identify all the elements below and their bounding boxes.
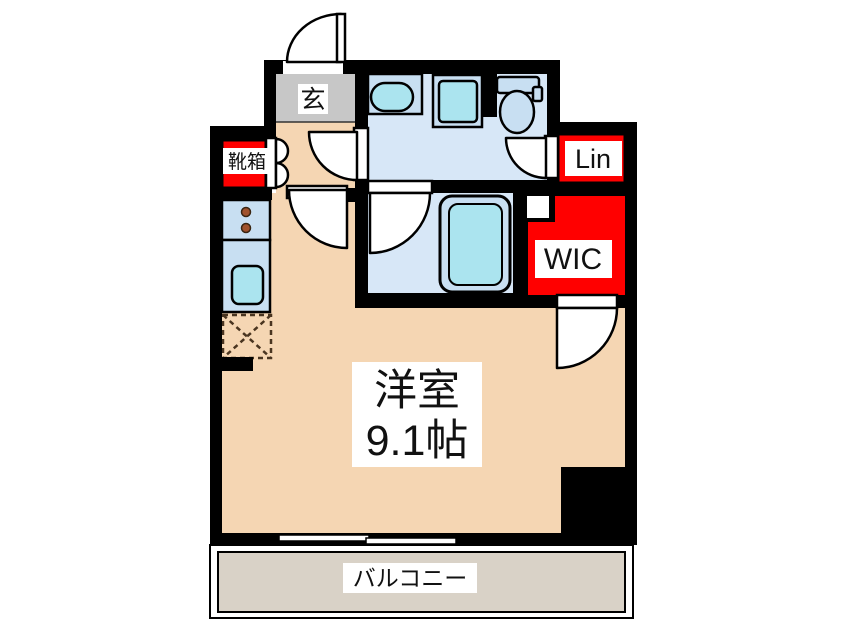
stove-burners-icon: [242, 224, 251, 233]
main-room-name: 洋室: [374, 367, 460, 415]
wall-pillar: [561, 467, 637, 545]
wall-shoebox-bottom: [210, 188, 272, 200]
kitchen-sink-icon: [232, 266, 263, 304]
wall-toilet-partition: [483, 60, 497, 117]
shoe-cabinet-label: 靴箱: [228, 151, 266, 173]
stove-burners-icon: [242, 208, 251, 217]
wall-lin-top: [553, 122, 637, 134]
stove-unit: [222, 200, 270, 240]
bathroom: [440, 196, 510, 292]
entrance-door-leaf: [337, 14, 345, 62]
entrance-door-swing-icon: [287, 14, 341, 62]
wash-basin-icon: [371, 83, 413, 111]
washing-machine-inner: [439, 81, 477, 122]
pipe-space: [527, 196, 549, 218]
balcony-label: バルコニー: [353, 565, 468, 591]
floor-plan: 玄 靴箱 Lin WIC 洋室 9.1帖 バルコニー: [0, 0, 846, 634]
wall-kitchen-stub: [210, 357, 253, 371]
bathroom-door-leaf: [368, 181, 432, 193]
bathtub-inner: [449, 204, 502, 285]
wic-label: WIC: [544, 243, 602, 276]
entrance-label: 玄: [300, 86, 325, 114]
wic-door-leaf: [557, 295, 617, 308]
wall-bath-bottom: [355, 293, 527, 308]
floor-plan-page: 玄 靴箱 Lin WIC 洋室 9.1帖 バルコニー: [0, 0, 846, 634]
linen-label: Lin: [575, 144, 611, 174]
main-room-size: 9.1帖: [366, 417, 469, 465]
